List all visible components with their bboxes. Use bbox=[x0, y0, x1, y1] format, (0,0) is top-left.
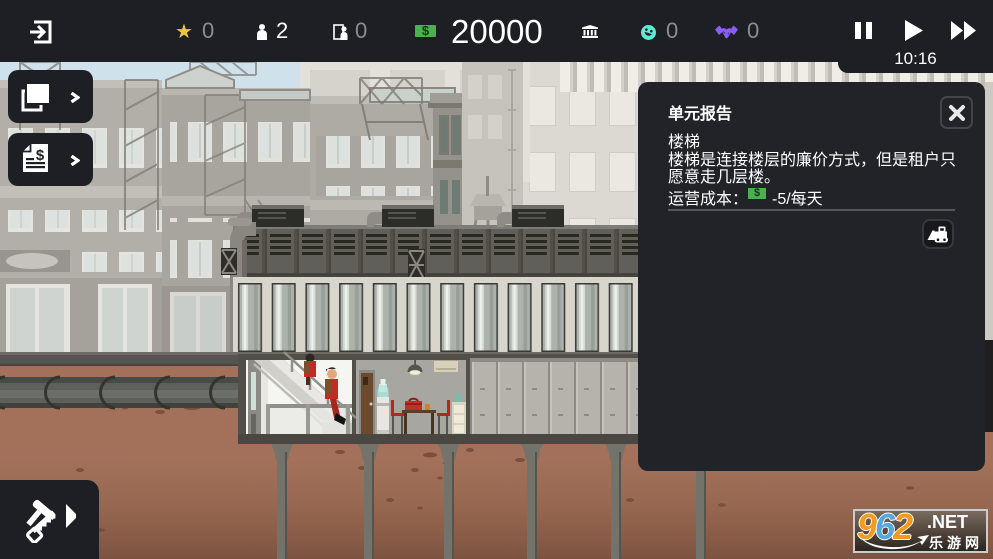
svg-text:$: $ bbox=[36, 147, 45, 164]
